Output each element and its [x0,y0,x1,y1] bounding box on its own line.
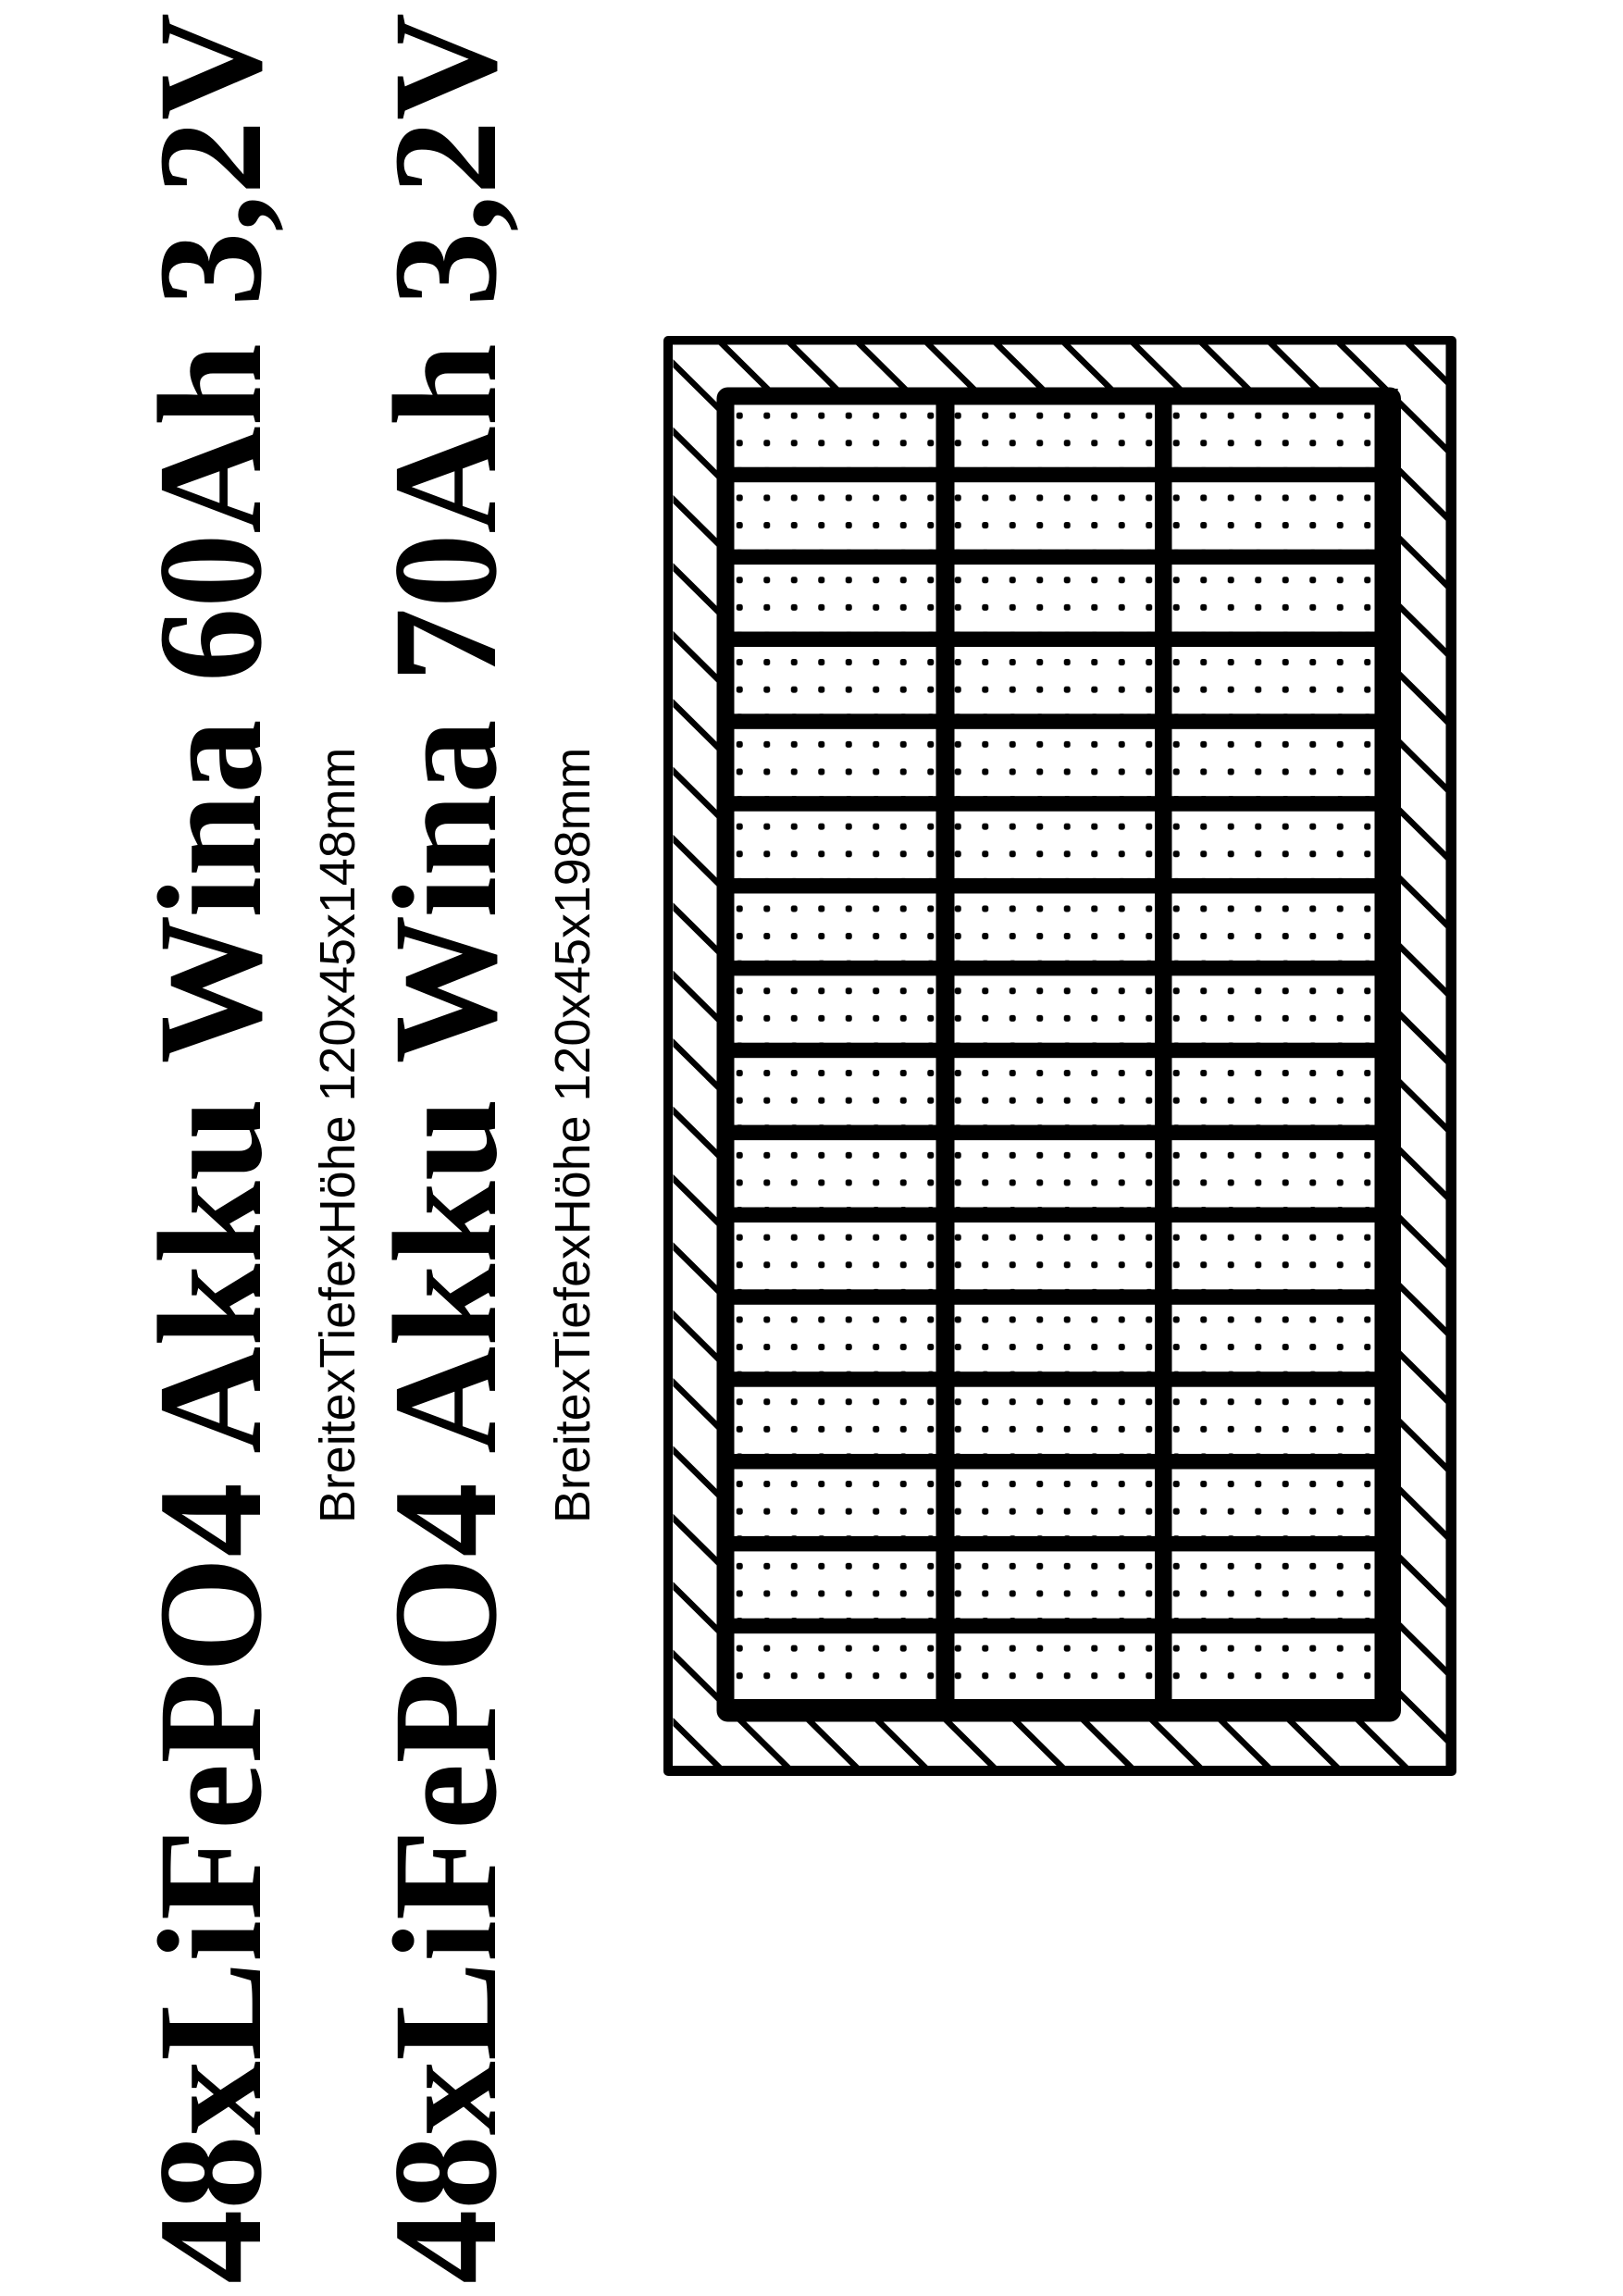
svg-text:BreitexTiefexHöhe 120x45x198mm: BreitexTiefexHöhe 120x45x198mm [545,748,601,1523]
svg-text:BreitexTiefexHöhe 120x45x148mm: BreitexTiefexHöhe 120x45x148mm [310,748,365,1523]
svg-text:48xLiFePO4 Akku Wina 60Ah 3,2V: 48xLiFePO4 Akku Wina 60Ah 3,2V [128,13,292,2284]
svg-text:48xLiFePO4 Akku Wina 70Ah 3,2V: 48xLiFePO4 Akku Wina 70Ah 3,2V [363,13,527,2284]
